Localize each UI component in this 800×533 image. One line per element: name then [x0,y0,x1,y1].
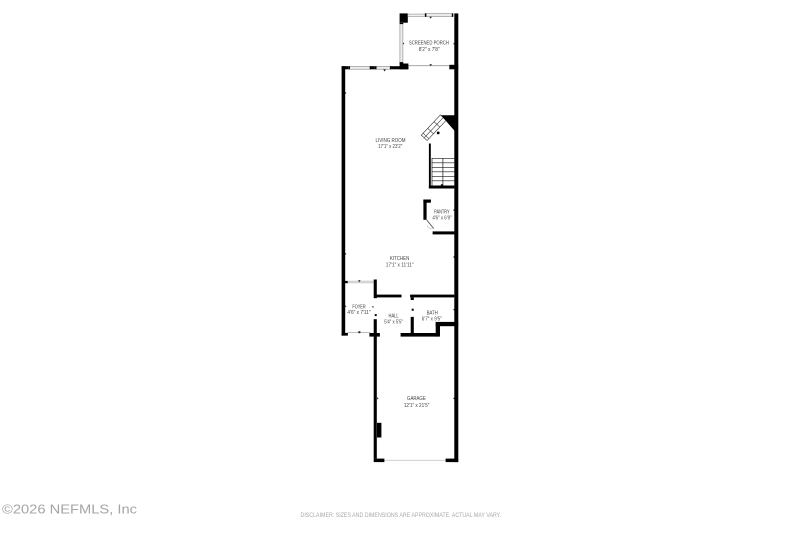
svg-text:8'2" x 7'8": 8'2" x 7'8" [419,47,440,53]
svg-text:LIVING ROOM: LIVING ROOM [376,138,406,144]
svg-text:12'1" x 21'5": 12'1" x 21'5" [404,403,430,409]
svg-text:PANTRY: PANTRY [434,209,450,215]
svg-text:5'4" x 5'5": 5'4" x 5'5" [384,320,403,326]
svg-text:DISCLAIMER: SIZES AND DIMENSIO: DISCLAIMER: SIZES AND DIMENSIONS ARE APP… [301,512,502,519]
svg-text:SCREENED PORCH: SCREENED PORCH [409,41,449,47]
svg-text:HALL: HALL [389,313,399,319]
svg-text:4'6" x 6'9": 4'6" x 6'9" [432,216,451,222]
svg-text:©2026 NEFMLS, Inc: ©2026 NEFMLS, Inc [2,501,138,516]
svg-text:6'7" x 9'5": 6'7" x 9'5" [422,317,442,323]
svg-text:17'1" x 23'2": 17'1" x 23'2" [378,144,402,150]
svg-text:4'6" x 7'11": 4'6" x 7'11" [347,310,370,316]
svg-text:17'1" x 11'11": 17'1" x 11'11" [386,263,414,269]
svg-text:GARAGE: GARAGE [407,396,426,402]
svg-text:KITCHEN: KITCHEN [390,256,410,262]
